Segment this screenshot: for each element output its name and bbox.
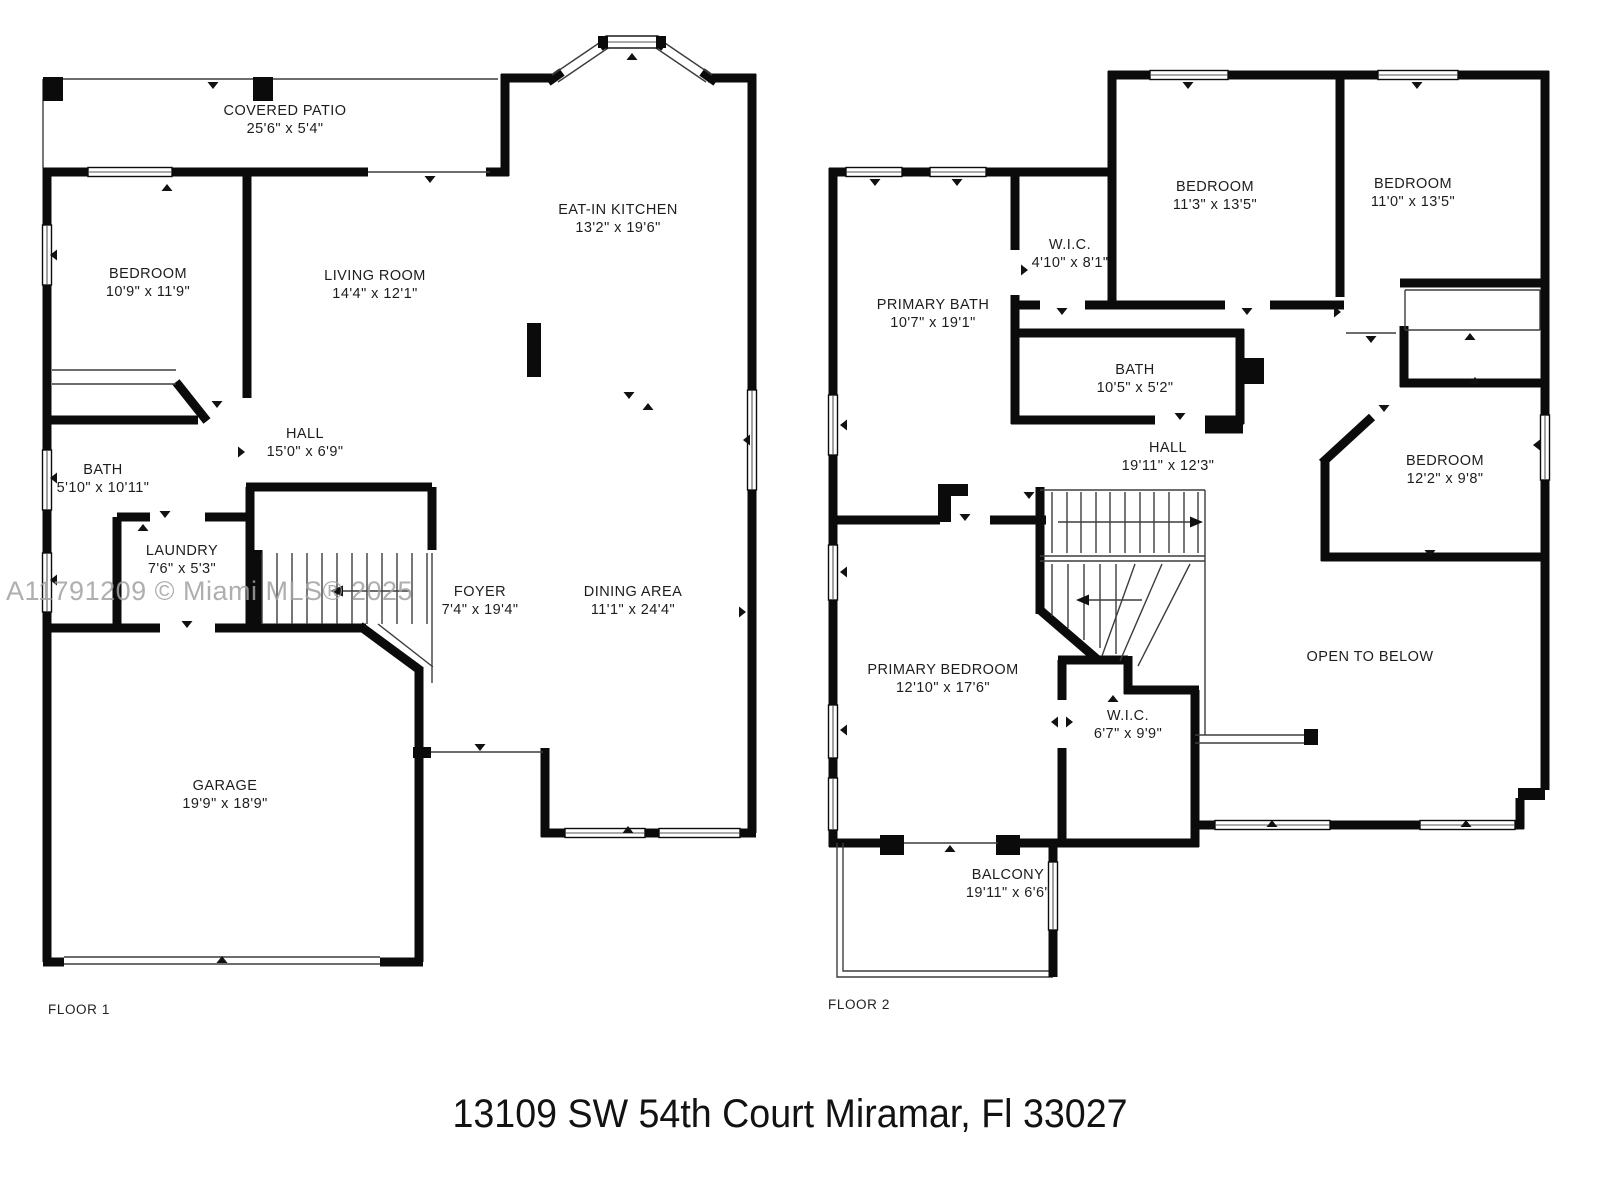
room-name: BEDROOM <box>1371 176 1455 194</box>
room-name: PRIMARY BATH <box>877 297 990 315</box>
room-dims: 11'0" x 13'5" <box>1371 194 1455 212</box>
room-label-bath-f2: BATH 10'5" x 5'2" <box>1097 362 1174 397</box>
room-label-bedroom-f1: BEDROOM 10'9" x 11'9" <box>106 266 190 301</box>
room-label-bedroom4-f2: BEDROOM 12'2" x 9'8" <box>1406 453 1484 488</box>
room-label-hall-f2: HALL 19'11" x 12'3" <box>1122 440 1215 475</box>
room-dims: 15'0" x 6'9" <box>267 444 344 462</box>
floorplan-page: COVERED PATIO 25'6" x 5'4" BEDROOM 10'9"… <box>0 0 1600 1200</box>
room-dims: 10'7" x 19'1" <box>877 315 990 333</box>
room-label-wic-small: W.I.C. 4'10" x 8'1" <box>1032 237 1109 272</box>
room-dims: 5'10" x 10'11" <box>57 480 150 498</box>
floor2-caption: FLOOR 2 <box>828 997 890 1012</box>
room-dims: 10'5" x 5'2" <box>1097 380 1174 398</box>
room-name: DINING AREA <box>584 584 682 602</box>
room-name: BATH <box>57 462 150 480</box>
room-label-dining-area: DINING AREA 11'1" x 24'4" <box>584 584 682 619</box>
floor1-caption: FLOOR 1 <box>48 1002 110 1017</box>
room-dims: 4'10" x 8'1" <box>1032 255 1109 273</box>
room-label-bath-f1: BATH 5'10" x 10'11" <box>57 462 150 497</box>
room-label-garage: GARAGE 19'9" x 18'9" <box>182 778 267 813</box>
room-dims: 19'11" x 6'6" <box>966 885 1050 903</box>
room-label-foyer: FOYER 7'4" x 19'4" <box>442 584 519 619</box>
floor1-door-markers <box>50 53 750 963</box>
room-dims: 6'7" x 9'9" <box>1094 726 1162 744</box>
room-dims: 19'9" x 18'9" <box>182 796 267 814</box>
room-dims: 11'3" x 13'5" <box>1173 197 1257 215</box>
room-label-primary-bath: PRIMARY BATH 10'7" x 19'1" <box>877 297 990 332</box>
room-label-eat-in-kitchen: EAT-IN KITCHEN 13'2" x 19'6" <box>558 202 678 237</box>
room-dims: 11'1" x 24'4" <box>584 602 682 620</box>
room-name: BEDROOM <box>106 266 190 284</box>
room-name: PRIMARY BEDROOM <box>867 662 1018 680</box>
room-name: EAT-IN KITCHEN <box>558 202 678 220</box>
room-dims: 25'6" x 5'4" <box>224 121 347 139</box>
room-name: BATH <box>1097 362 1174 380</box>
room-name: LIVING ROOM <box>324 268 426 286</box>
room-label-primary-bedroom: PRIMARY BEDROOM 12'10" x 17'6" <box>867 662 1018 697</box>
room-name: LAUNDRY <box>146 543 218 561</box>
room-name: FOYER <box>442 584 519 602</box>
room-name: W.I.C. <box>1094 708 1162 726</box>
floor2-balcony-outline <box>837 843 1058 977</box>
room-dims: 7'4" x 19'4" <box>442 602 519 620</box>
mls-watermark: A11791209 © Miami MLS® 2025 <box>6 576 413 607</box>
room-label-bedroom3-f2: BEDROOM 11'0" x 13'5" <box>1371 176 1455 211</box>
room-name: BALCONY <box>966 867 1050 885</box>
room-name: BEDROOM <box>1173 179 1257 197</box>
room-name: W.I.C. <box>1032 237 1109 255</box>
room-label-covered-patio: COVERED PATIO 25'6" x 5'4" <box>224 103 347 138</box>
room-dims: 12'2" x 9'8" <box>1406 471 1484 489</box>
room-name: HALL <box>267 426 344 444</box>
room-label-laundry: LAUNDRY 7'6" x 5'3" <box>146 543 218 578</box>
floor1-plan <box>43 36 757 964</box>
room-label-hall-f1: HALL 15'0" x 6'9" <box>267 426 344 461</box>
room-label-living-room: LIVING ROOM 14'4" x 12'1" <box>324 268 426 303</box>
room-dims: 19'11" x 12'3" <box>1122 458 1215 476</box>
room-name: BEDROOM <box>1406 453 1484 471</box>
floor2-stairs <box>1040 490 1318 745</box>
room-name: HALL <box>1122 440 1215 458</box>
room-dims: 14'4" x 12'1" <box>324 286 426 304</box>
room-name: COVERED PATIO <box>224 103 347 121</box>
floorplan-drawing <box>0 0 1600 1060</box>
property-address-title: 13109 SW 54th Court Miramar, Fl 33027 <box>452 1092 1127 1137</box>
room-name: GARAGE <box>182 778 267 796</box>
room-label-wic-large: W.I.C. 6'7" x 9'9" <box>1094 708 1162 743</box>
room-dims: 13'2" x 19'6" <box>558 220 678 238</box>
room-dims: 10'9" x 11'9" <box>106 284 190 302</box>
room-name: OPEN TO BELOW <box>1307 649 1434 667</box>
room-label-balcony: BALCONY 19'11" x 6'6" <box>966 867 1050 902</box>
room-dims: 12'10" x 17'6" <box>867 680 1018 698</box>
room-label-bedroom2-f2: BEDROOM 11'3" x 13'5" <box>1173 179 1257 214</box>
room-label-open-to-below: OPEN TO BELOW <box>1307 649 1434 667</box>
